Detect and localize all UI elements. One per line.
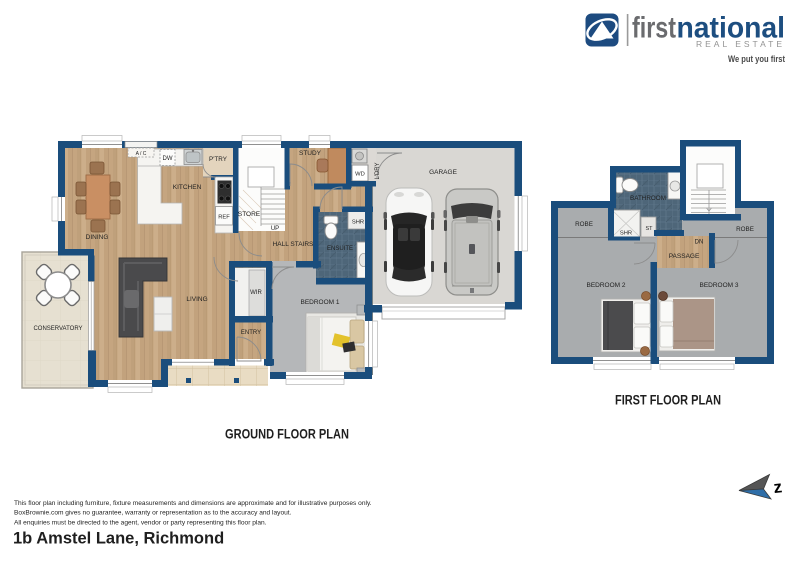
svg-text:REF: REF (218, 215, 230, 221)
svg-text:PASSAGE: PASSAGE (669, 253, 700, 260)
svg-text:WD: WD (355, 172, 365, 178)
svg-text:BEDROOM 1: BEDROOM 1 (300, 299, 339, 306)
svg-text:BATHROOM: BATHROOM (630, 195, 666, 202)
svg-text:ROBE: ROBE (736, 226, 754, 233)
svg-text:ENSUITE: ENSUITE (327, 246, 353, 252)
svg-text:BoxBrownie.com gives no guaran: BoxBrownie.com gives no guarantee, warra… (14, 510, 292, 517)
svg-text:UP: UP (271, 226, 279, 232)
svg-text:P'TRY: P'TRY (209, 156, 228, 163)
svg-text:ST: ST (645, 226, 653, 232)
svg-text:REAL ESTATE: REAL ESTATE (696, 39, 785, 49)
svg-text:BEDROOM 2: BEDROOM 2 (586, 282, 625, 289)
svg-text:GARAGE: GARAGE (429, 169, 457, 176)
svg-text:STORE: STORE (238, 211, 261, 218)
svg-text:A / C: A / C (136, 151, 147, 157)
svg-text:KITCHEN: KITCHEN (173, 184, 202, 191)
svg-text:SHR: SHR (352, 220, 364, 226)
svg-text:CONSERVATORY: CONSERVATORY (33, 326, 82, 332)
svg-text:FIRST FLOOR PLAN: FIRST FLOOR PLAN (615, 393, 721, 408)
svg-text:BEDROOM 3: BEDROOM 3 (699, 282, 738, 289)
svg-text:DINING: DINING (86, 234, 109, 241)
svg-text:GROUND FLOOR PLAN: GROUND FLOOR PLAN (225, 427, 349, 442)
svg-text:SHR: SHR (620, 231, 632, 237)
svg-text:first: first (632, 12, 676, 45)
svg-text:This floor plan including furn: This floor plan including furniture, fix… (14, 500, 372, 507)
svg-text:1b Amstel Lane, Richmond: 1b Amstel Lane, Richmond (13, 530, 224, 548)
svg-text:DW: DW (163, 156, 173, 162)
svg-text:WIR: WIR (250, 290, 262, 296)
svg-text:STUDY: STUDY (299, 150, 322, 157)
svg-text:LIVING: LIVING (186, 296, 207, 303)
svg-text:ENTRY: ENTRY (241, 330, 261, 336)
svg-text:We put you first: We put you first (728, 54, 785, 64)
svg-text:ROBE: ROBE (575, 221, 593, 228)
svg-text:L'DRY: L'DRY (375, 162, 381, 179)
svg-text:HALL STAIRS: HALL STAIRS (273, 241, 314, 248)
svg-text:All enquiries must be directed: All enquiries must be directed to the ag… (14, 519, 267, 526)
svg-text:DN: DN (695, 240, 704, 246)
